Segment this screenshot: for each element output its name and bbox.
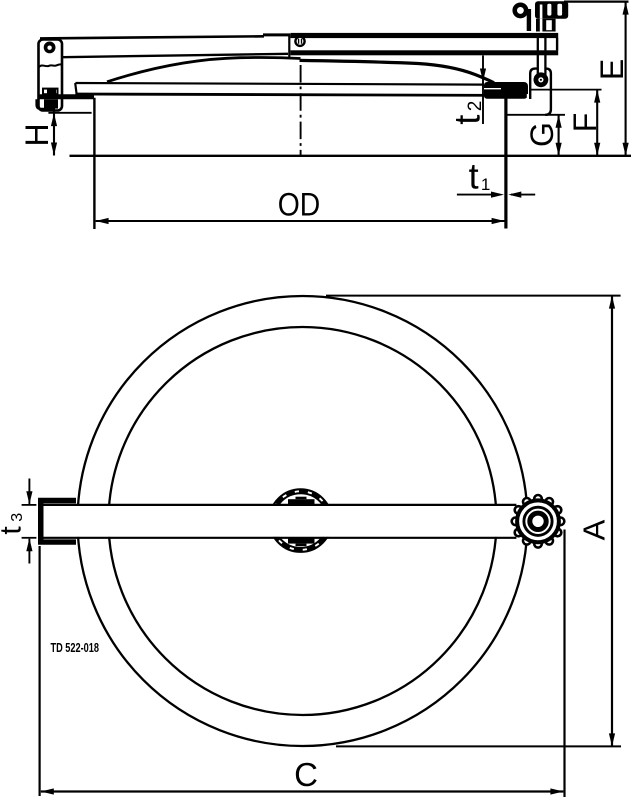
svg-text:3: 3 (9, 513, 26, 522)
svg-text:OD: OD (278, 186, 321, 222)
svg-text:TD 522-018: TD 522-018 (51, 641, 100, 655)
svg-text:F: F (567, 113, 603, 133)
svg-text:t: t (469, 156, 479, 197)
svg-text:H: H (19, 123, 55, 146)
svg-text:1: 1 (481, 175, 490, 194)
svg-text:t: t (447, 115, 488, 125)
svg-text:t: t (0, 526, 28, 535)
svg-text:G: G (524, 122, 560, 147)
svg-text:A: A (577, 519, 612, 540)
svg-text:2: 2 (465, 101, 486, 112)
svg-text:C: C (294, 756, 318, 793)
svg-text:E: E (594, 59, 630, 80)
